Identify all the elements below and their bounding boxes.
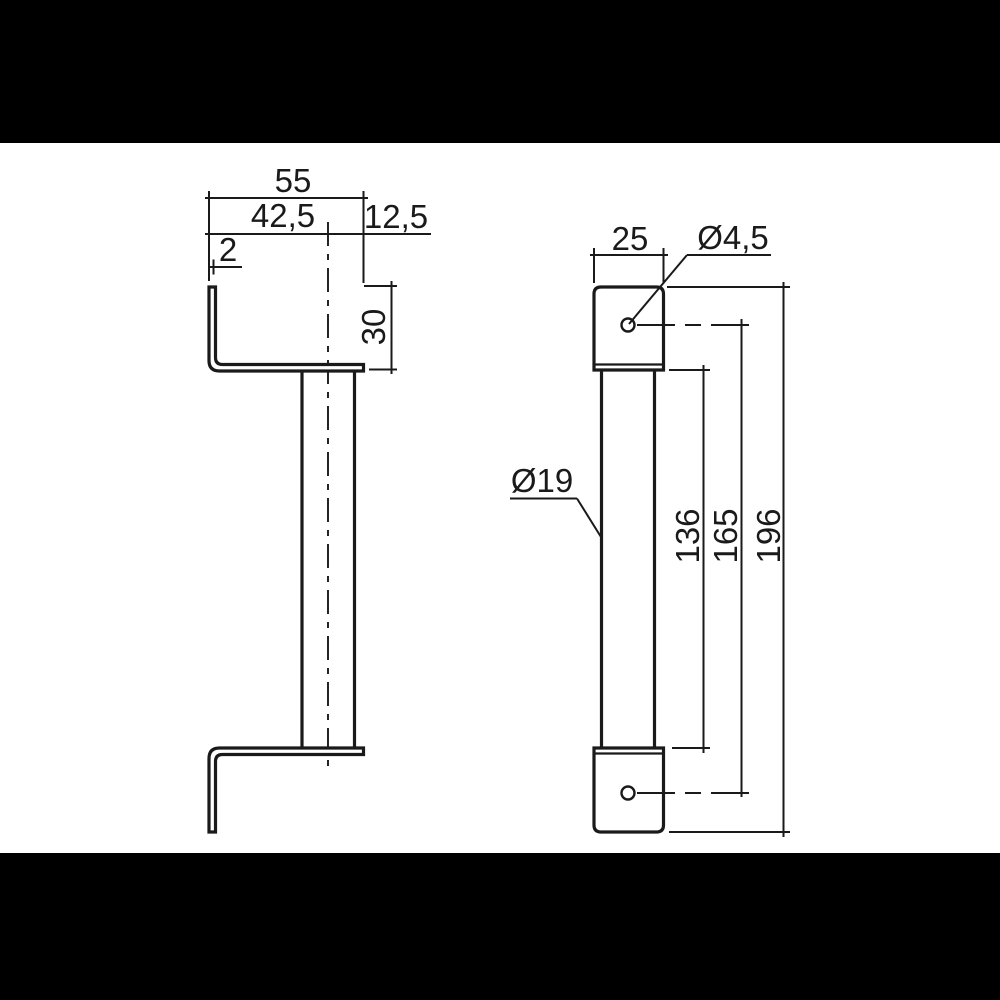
front-view-bottom-block xyxy=(594,748,664,832)
dim-label-hole-spacing: 165 xyxy=(707,508,744,563)
side-view: 55 42,5 12,5 2 30 xyxy=(205,162,431,832)
side-view-top-bracket-outline xyxy=(209,287,364,371)
dim-label-center-offset: 42,5 xyxy=(251,197,315,234)
dim-label-hole-diameter: Ø4,5 xyxy=(697,219,769,256)
drawing-canvas: 55 42,5 12,5 2 30 xyxy=(0,0,1000,1000)
front-view-top-block xyxy=(594,287,664,370)
side-view-bottom-bracket-outline xyxy=(209,748,364,832)
dim-label-bar-length: 136 xyxy=(669,508,706,563)
leader-line-bar-diameter xyxy=(577,499,601,538)
dim-label-sheet-thickness: 2 xyxy=(219,231,237,268)
dim-label-right-offset: 12,5 xyxy=(364,198,428,235)
letterbox-top-bar xyxy=(0,0,1000,143)
dim-label-overall-height: 196 xyxy=(750,508,787,563)
letterbox-bottom-bar xyxy=(0,853,1000,1000)
dim-label-block-width: 25 xyxy=(612,220,649,257)
front-view: 25 Ø4,5 Ø19 136 165 196 xyxy=(510,219,790,837)
dim-label-bar-diameter: Ø19 xyxy=(511,462,573,499)
technical-drawing-svg: 55 42,5 12,5 2 30 xyxy=(0,0,1000,1000)
dim-label-overall-width: 55 xyxy=(275,162,312,199)
dim-label-bracket-height: 30 xyxy=(355,309,392,346)
